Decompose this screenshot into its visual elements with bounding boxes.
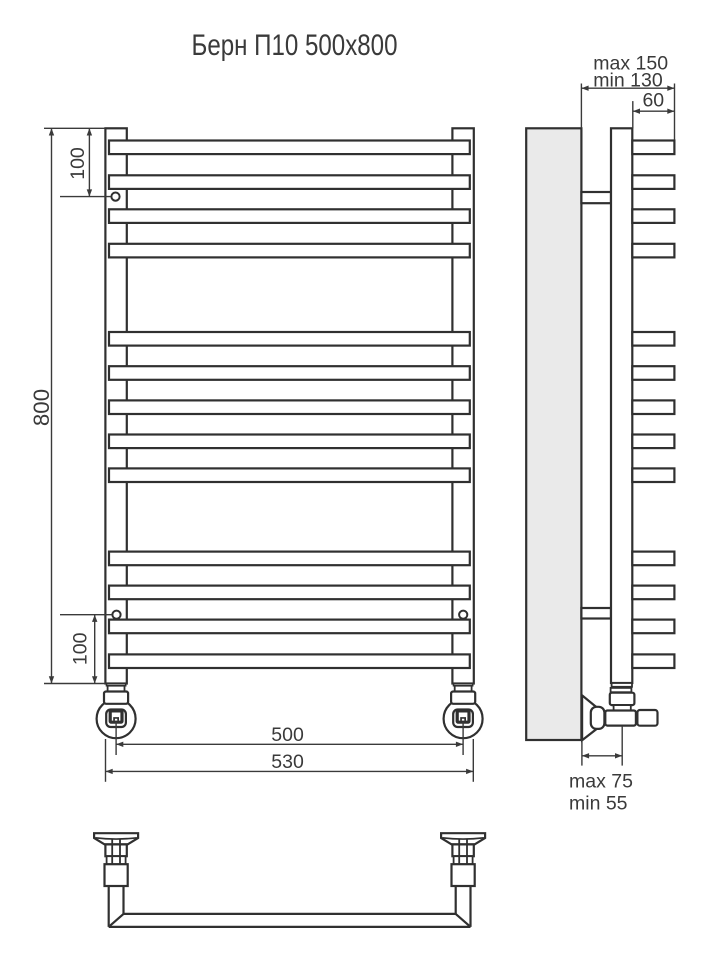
- svg-text:530: 530: [271, 751, 304, 773]
- svg-text:Берн П10 500x800: Берн П10 500x800: [192, 29, 398, 62]
- svg-text:max 75: max 75: [569, 771, 633, 793]
- svg-text:min 55: min 55: [569, 793, 628, 815]
- svg-text:min 130: min 130: [593, 69, 663, 91]
- svg-text:500: 500: [271, 724, 304, 746]
- svg-text:60: 60: [642, 89, 664, 111]
- svg-text:800: 800: [29, 389, 54, 426]
- svg-text:100: 100: [67, 147, 89, 180]
- svg-text:100: 100: [70, 632, 92, 665]
